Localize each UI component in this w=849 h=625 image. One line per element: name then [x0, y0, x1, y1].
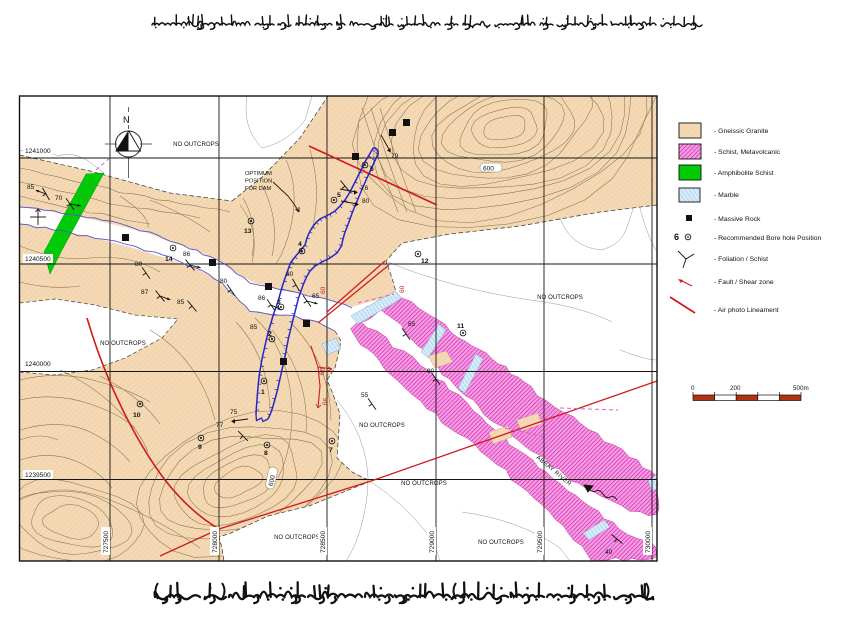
svg-text:14: 14	[165, 256, 173, 263]
svg-text:65: 65	[312, 293, 320, 300]
svg-text:75: 75	[230, 409, 238, 416]
svg-text:80: 80	[286, 271, 294, 278]
svg-text:85: 85	[250, 324, 258, 331]
svg-text:729000: 729000	[429, 531, 436, 553]
svg-text:730000: 730000	[645, 531, 652, 553]
svg-text:NO OUTCROPS: NO OUTCROPS	[100, 341, 146, 347]
svg-text:FOR DAM: FOR DAM	[245, 186, 271, 192]
svg-text:728000: 728000	[212, 531, 219, 553]
svg-text:4: 4	[298, 241, 302, 248]
svg-text:85: 85	[408, 321, 416, 328]
svg-text:- Marble: - Marble	[714, 192, 739, 199]
svg-text:- Fault / Shear zone: - Fault / Shear zone	[714, 279, 774, 286]
svg-text:- Foliation / Schist: - Foliation / Schist	[714, 256, 768, 263]
svg-text:11: 11	[457, 323, 464, 330]
svg-text:79: 79	[391, 153, 399, 160]
svg-text:0: 0	[691, 385, 695, 392]
svg-text:- Air photo Lineament: - Air photo Lineament	[714, 307, 779, 314]
svg-text:NO OUTCROPS: NO OUTCROPS	[359, 423, 405, 429]
svg-text:86: 86	[183, 251, 191, 258]
svg-text:- Gneissic Granite: - Gneissic Granite	[714, 128, 769, 135]
svg-text:10: 10	[133, 412, 141, 419]
svg-text:8: 8	[264, 450, 268, 457]
svg-text:3: 3	[277, 299, 281, 306]
svg-text:13: 13	[244, 228, 252, 235]
svg-text:6: 6	[674, 232, 679, 242]
svg-text:600: 600	[483, 166, 494, 173]
svg-text:9: 9	[198, 444, 202, 451]
svg-text:NO OUTCROPS: NO OUTCROPS	[401, 481, 447, 487]
svg-text:1241000: 1241000	[25, 148, 51, 155]
svg-text:POSITION: POSITION	[245, 179, 272, 185]
svg-text:77: 77	[216, 422, 224, 429]
svg-text:7: 7	[329, 447, 333, 454]
svg-text:729500: 729500	[537, 531, 544, 553]
svg-text:80: 80	[362, 198, 370, 205]
svg-text:500m: 500m	[793, 385, 809, 392]
svg-text:2: 2	[268, 331, 272, 338]
svg-text:55: 55	[361, 392, 369, 399]
svg-text:OPTIMUM: OPTIMUM	[245, 171, 272, 177]
svg-text:NO OUTCROPS: NO OUTCROPS	[274, 535, 320, 541]
svg-text:N: N	[123, 115, 130, 125]
svg-text:60: 60	[399, 285, 406, 293]
svg-text:80: 80	[220, 278, 228, 285]
svg-text:1: 1	[261, 389, 265, 396]
svg-text:728500: 728500	[320, 531, 327, 553]
svg-text:727500: 727500	[103, 531, 110, 553]
svg-text:1239500: 1239500	[25, 472, 51, 479]
svg-text:1240500: 1240500	[25, 256, 51, 263]
svg-text:86: 86	[258, 295, 266, 302]
svg-text:76: 76	[361, 185, 369, 192]
svg-text:- Schist, Metavolcanic: - Schist, Metavolcanic	[714, 149, 781, 156]
svg-text:5: 5	[337, 192, 341, 199]
svg-text:- Massive Rock: - Massive Rock	[714, 216, 761, 223]
svg-text:40: 40	[605, 549, 613, 556]
svg-text:87: 87	[141, 289, 149, 296]
svg-text:85: 85	[27, 184, 35, 191]
svg-text:12: 12	[421, 258, 429, 265]
svg-text:- Recommended Bore hole Positi: - Recommended Bore hole Position	[714, 235, 822, 242]
svg-text:6: 6	[370, 166, 374, 173]
svg-text:NO OUTCROPS: NO OUTCROPS	[173, 142, 219, 148]
svg-text:- Amphibolite Schist: - Amphibolite Schist	[714, 170, 774, 177]
svg-text:NO OUTCROPS: NO OUTCROPS	[478, 540, 524, 546]
svg-text:90: 90	[427, 368, 435, 375]
svg-text:60: 60	[320, 286, 327, 294]
svg-text:200: 200	[730, 385, 741, 392]
svg-text:85: 85	[177, 299, 185, 306]
svg-text:70: 70	[55, 195, 63, 202]
svg-text:NO OUTCROPS: NO OUTCROPS	[537, 295, 583, 301]
svg-text:1240000: 1240000	[25, 361, 51, 368]
svg-text:80: 80	[135, 261, 143, 268]
